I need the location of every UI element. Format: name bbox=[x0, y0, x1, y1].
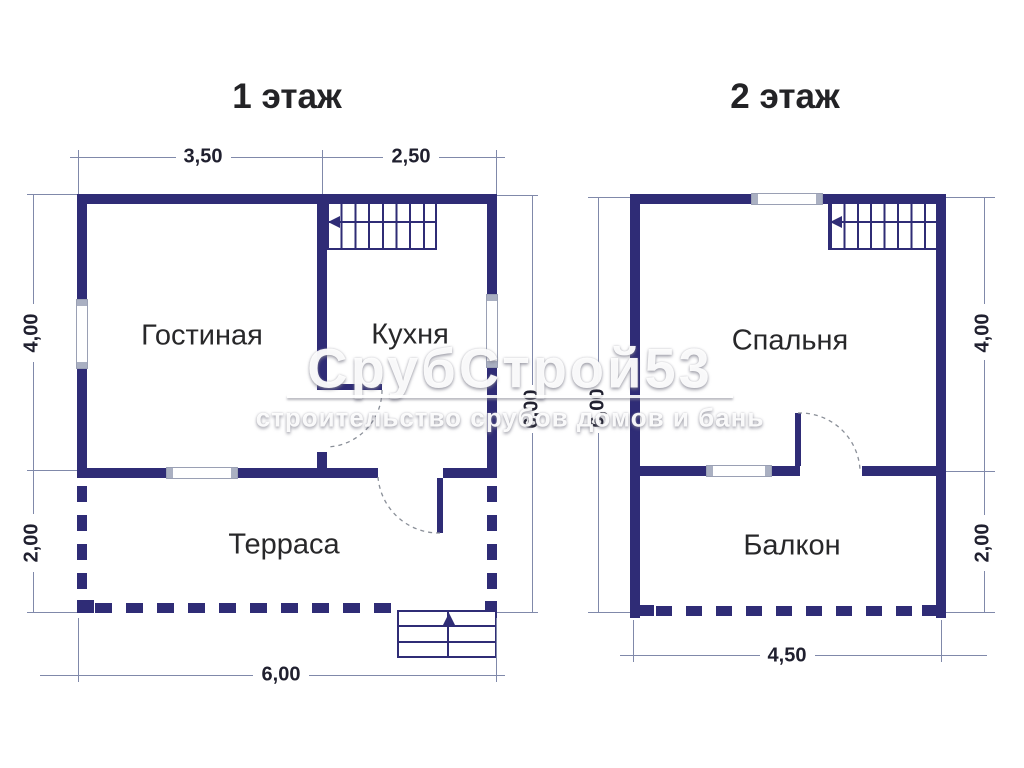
f1-left-wall-lower bbox=[77, 368, 87, 478]
f1-dim-top-left: 3,50 bbox=[184, 146, 223, 169]
f1-terrace-sw-corner bbox=[77, 600, 94, 613]
room-label-living: Гостиная bbox=[141, 320, 263, 353]
f2-top-window bbox=[751, 193, 823, 205]
watermark-rule bbox=[287, 395, 733, 398]
f1-terrace-left-dashed-wall bbox=[77, 486, 87, 600]
f1-stairs-arrow-icon bbox=[328, 216, 340, 228]
f1-dim-left-upper: 4,00 bbox=[21, 314, 44, 353]
f2-balcony-door-arc bbox=[798, 413, 860, 470]
f2-dim-right-lower: 2,00 bbox=[972, 524, 995, 563]
f1-left-window bbox=[76, 299, 88, 369]
f2-stairs-arrow-icon bbox=[830, 216, 842, 228]
f2-balcony-se-foot bbox=[922, 605, 936, 616]
f2-stairs-treads bbox=[830, 204, 936, 248]
room-label-bedroom: Спальня bbox=[732, 325, 849, 358]
f1-top-wall bbox=[77, 194, 497, 204]
floor-plan-canvas: 1 этаж 2 этаж bbox=[0, 0, 1024, 768]
f1-terrace-bottom-dashed-wall bbox=[95, 603, 395, 613]
f1-terrace-door-arc bbox=[378, 477, 440, 533]
watermark-brand: СрубСтрой53 bbox=[307, 336, 713, 401]
f2-dim-right-upper: 4,00 bbox=[972, 314, 995, 353]
f2-right-wall bbox=[936, 194, 946, 618]
f2-interior-wall-right bbox=[862, 466, 936, 476]
f1-bottom-window bbox=[166, 467, 238, 479]
f1-bottom-wall-right bbox=[443, 468, 497, 478]
f1-stairs bbox=[327, 204, 437, 250]
f1-terrace-door-leaf bbox=[437, 478, 443, 533]
floor1-title: 1 этаж bbox=[232, 77, 341, 117]
f1-left-wall-upper bbox=[77, 194, 87, 300]
f1-dim-top-right: 2,50 bbox=[392, 146, 431, 169]
f2-balcony-sw-foot bbox=[640, 605, 654, 616]
f1-stairs-treads bbox=[327, 204, 435, 248]
f2-balcony-dashed-wall bbox=[656, 606, 920, 616]
f2-interior-window bbox=[706, 465, 772, 477]
floor2-title: 2 этаж bbox=[730, 77, 839, 117]
watermark-tagline: строительство срубов домов и бань bbox=[256, 403, 765, 434]
room-label-terrace: Терраса bbox=[228, 529, 339, 562]
f2-stairs-midline bbox=[828, 221, 936, 223]
f2-balcony-door-leaf bbox=[795, 413, 801, 466]
f1-terrace-right-dashed-wall bbox=[487, 486, 497, 600]
room-label-balcony: Балкон bbox=[743, 530, 840, 563]
f1-dim-left-lower: 2,00 bbox=[21, 524, 44, 563]
f1-entry-arrow-icon bbox=[443, 613, 455, 625]
f1-stairs-midline bbox=[327, 221, 437, 223]
f1-dim-bottom-total: 6,00 bbox=[262, 664, 301, 687]
f2-stairs bbox=[828, 204, 936, 250]
f2-dim-bottom-total: 4,50 bbox=[768, 645, 807, 668]
